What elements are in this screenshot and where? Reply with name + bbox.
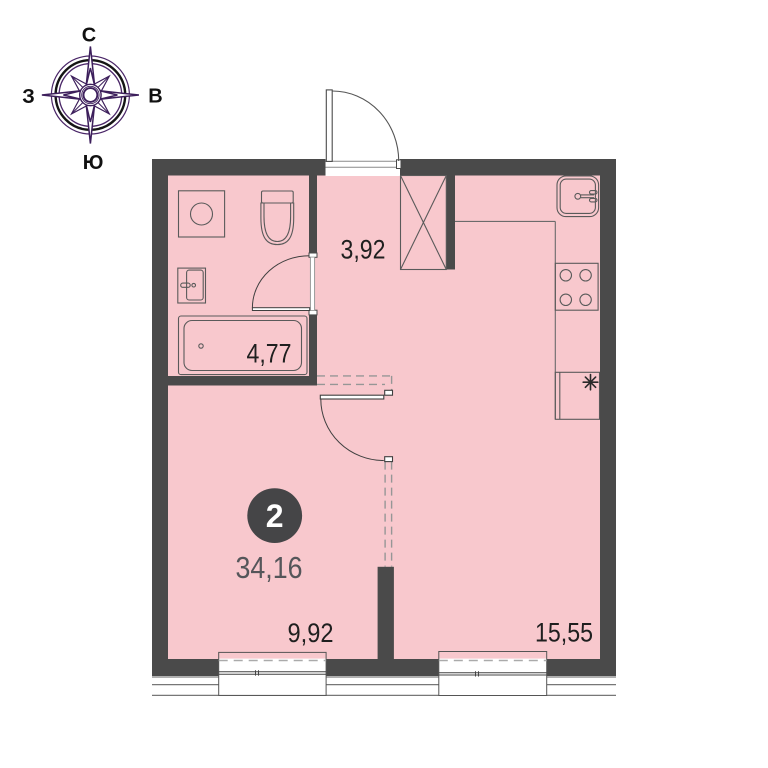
svg-text:С: С [82, 25, 96, 47]
svg-text:9,92: 9,92 [288, 618, 334, 648]
svg-text:4,77: 4,77 [247, 339, 292, 369]
svg-text:3,92: 3,92 [341, 235, 386, 265]
svg-text:15,55: 15,55 [535, 618, 593, 648]
svg-text:2: 2 [266, 498, 284, 534]
svg-text:В: В [148, 86, 162, 108]
svg-text:Ю: Ю [83, 152, 104, 174]
svg-text:34,16: 34,16 [236, 550, 303, 585]
svg-text:З: З [22, 86, 35, 108]
